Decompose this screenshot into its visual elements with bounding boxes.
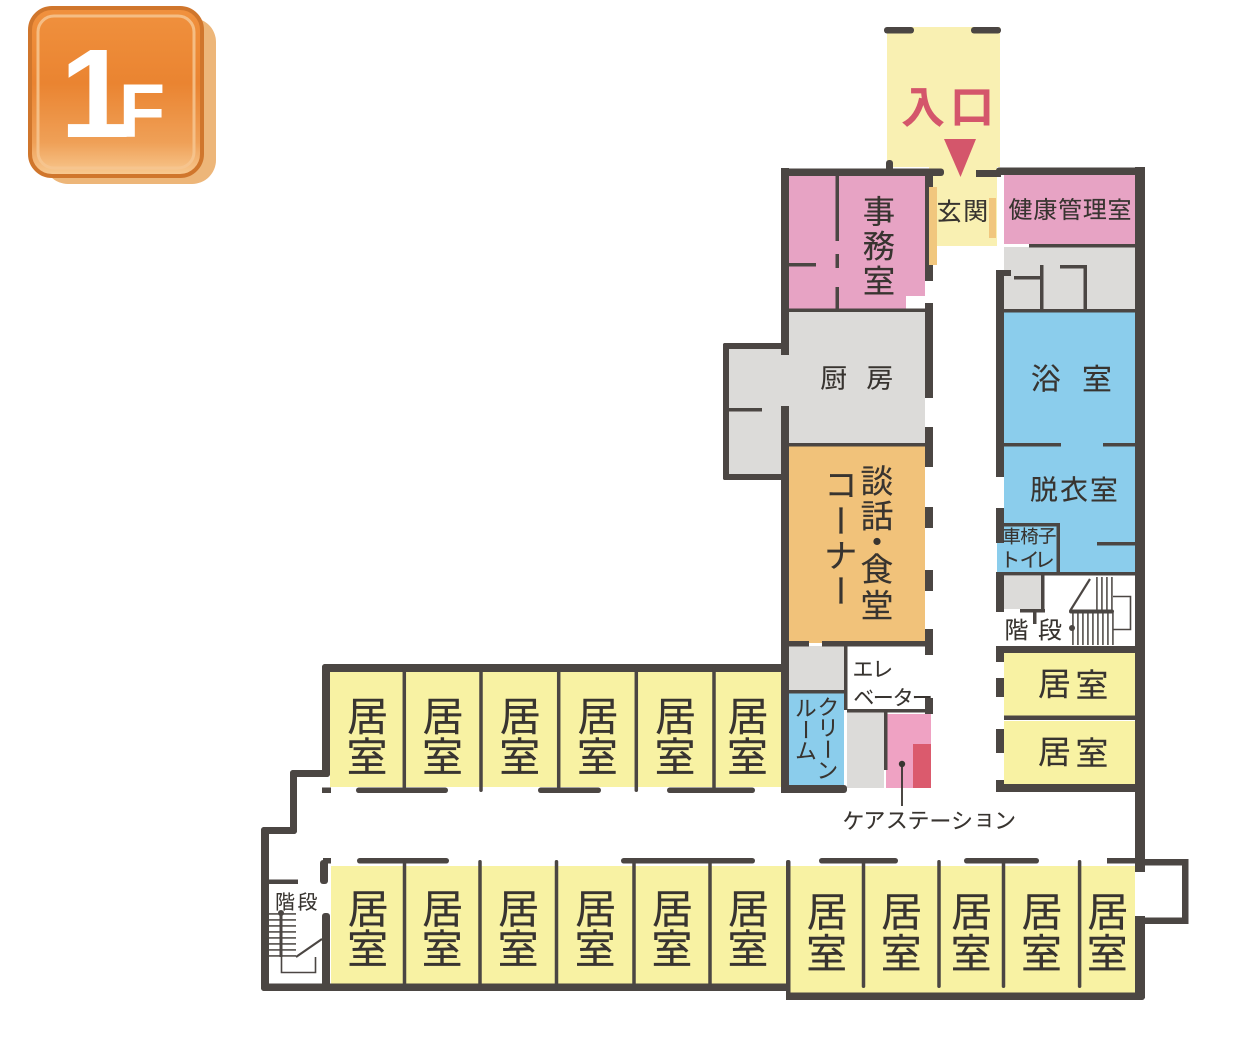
svg-text:F: F xyxy=(119,69,165,154)
